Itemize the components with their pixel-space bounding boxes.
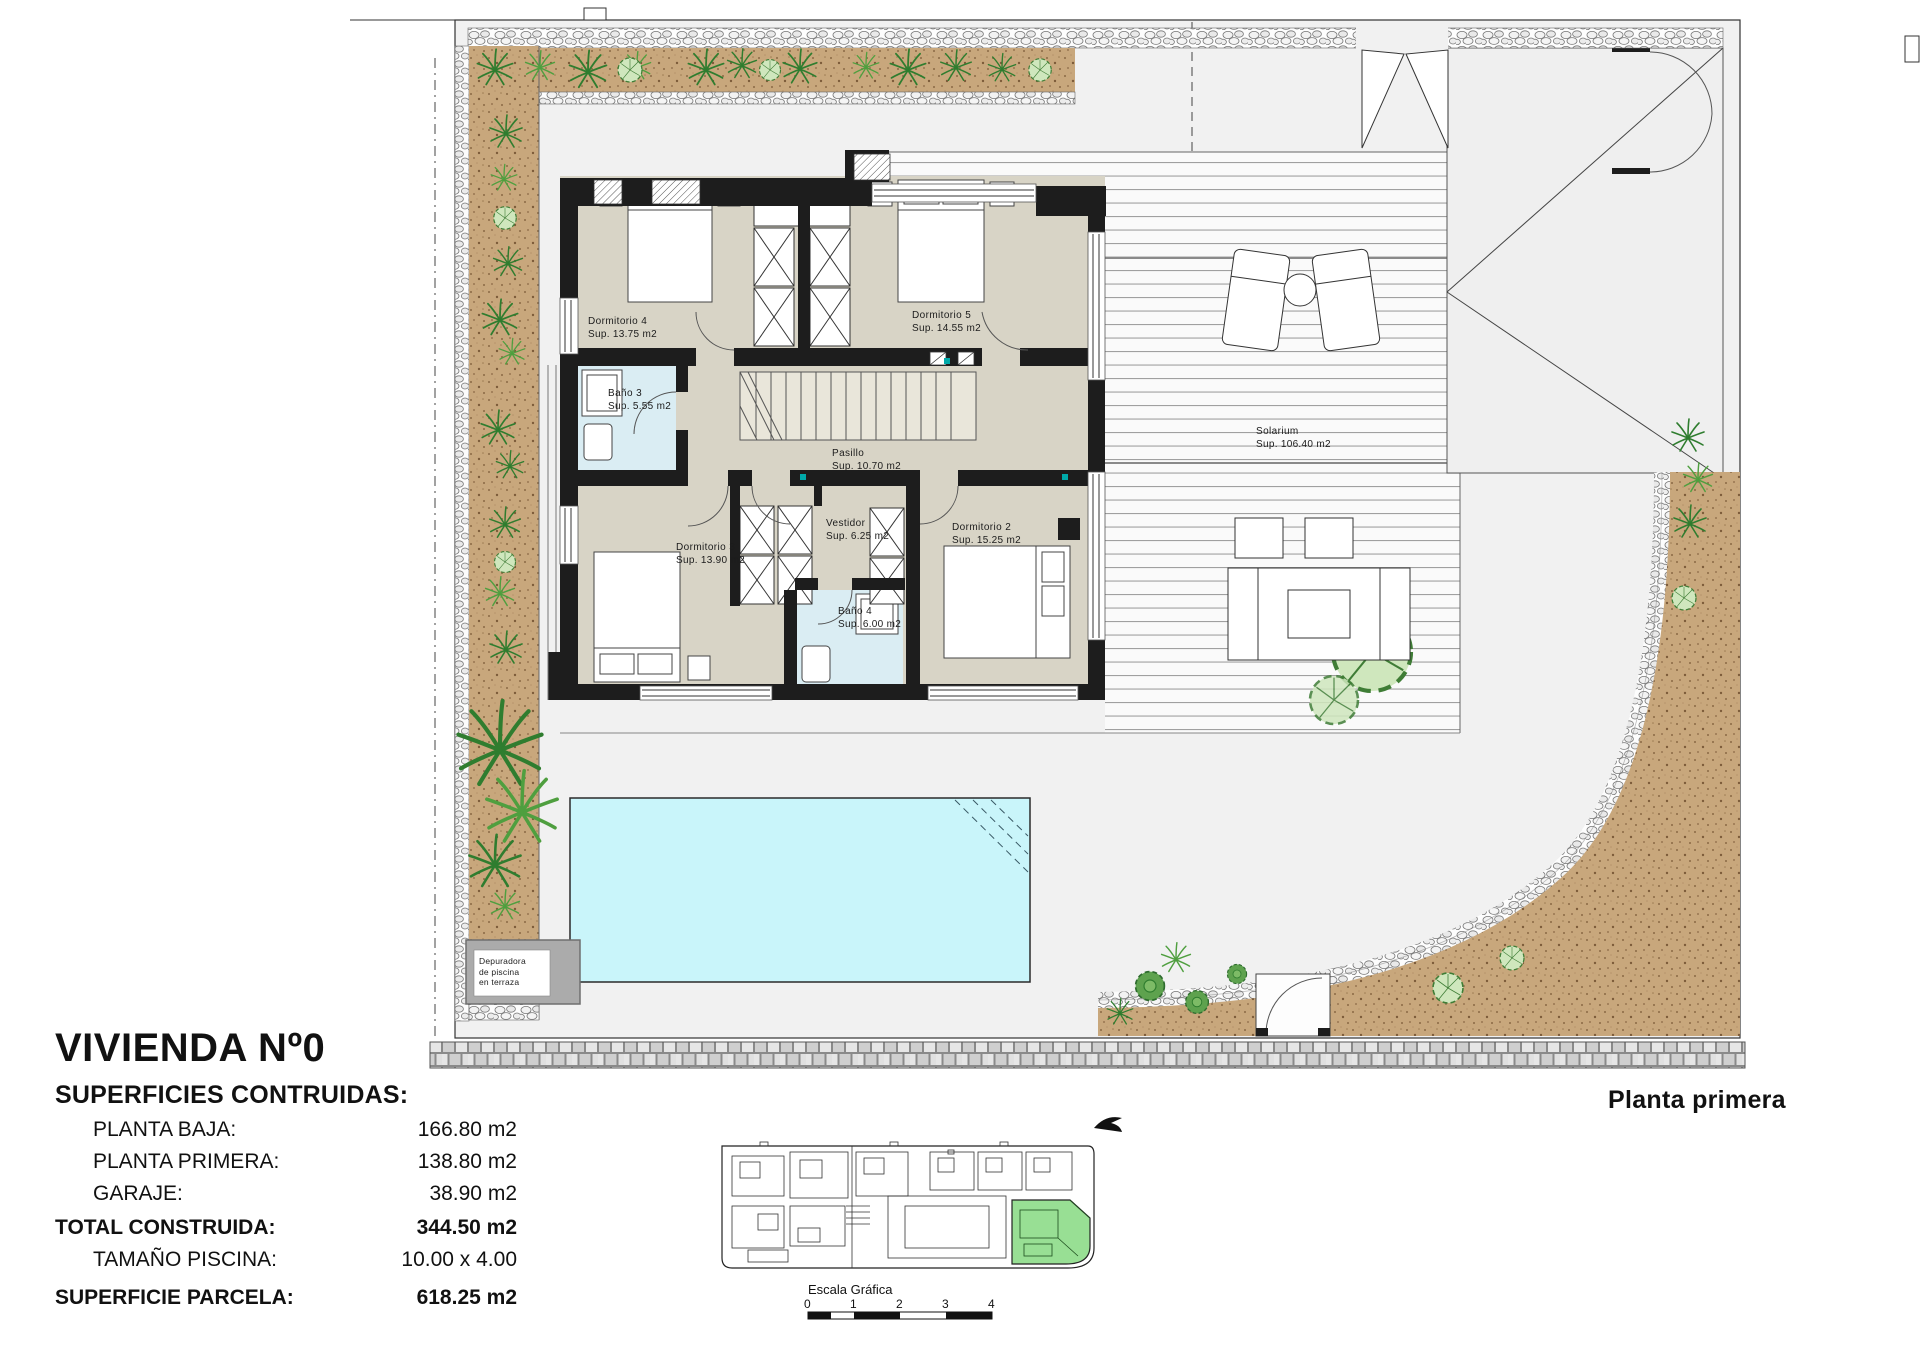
deck-table — [1305, 518, 1353, 558]
garage-roof — [1447, 46, 1723, 473]
room-label-dormitorio3: Dormitorio 3 Sup. 13.90 m2 — [676, 542, 745, 567]
house — [548, 150, 1106, 700]
row-total-construida: TOTAL CONSTRUIDA: 344.50 m2 — [55, 1216, 517, 1240]
scale-tick: 3 — [942, 1297, 949, 1311]
highlighted-unit — [1012, 1200, 1090, 1264]
floor-plan-sheet: Escala Gráfica 0 1 2 3 4 Dormitorio 4 Su… — [0, 0, 1920, 1357]
row-planta-primera: PLANTA PRIMERA: 138.80 m2 — [55, 1150, 517, 1174]
rear-gate — [1256, 974, 1330, 1036]
key-plan — [722, 1117, 1122, 1268]
room-label-pasillo: Pasillo Sup. 10.70 m2 — [832, 448, 901, 473]
row-superficie-parcela: SUPERFICIE PARCELA: 618.25 m2 — [55, 1286, 517, 1310]
bed-dorm2 — [944, 546, 1070, 658]
room-label-vestidor: Vestidor Sup. 6.25 m2 — [826, 518, 889, 543]
title-block: VIVIENDA Nº0 SUPERFICIES CONTRUIDAS: PLA… — [55, 1026, 517, 1310]
row-tamano-piscina: TAMAÑO PISCINA: 10.00 x 4.00 — [55, 1248, 517, 1272]
depuradora-note: Depuradora de piscina en terraza — [479, 956, 526, 988]
room-label-solarium: Solarium Sup. 106.40 m2 — [1256, 426, 1331, 451]
staircase — [740, 372, 976, 440]
room-label-dormitorio2: Dormitorio 2 Sup. 15.25 m2 — [952, 522, 1021, 547]
scale-tick: 4 — [988, 1297, 995, 1311]
sidewalk — [430, 1042, 1745, 1068]
room-label-bano4: Baño 4 Sup. 6.00 m2 — [838, 606, 901, 631]
row-planta-baja: PLANTA BAJA: 166.80 m2 — [55, 1118, 517, 1142]
sofa-set — [1228, 568, 1410, 660]
room-label-dormitorio4: Dormitorio 4 Sup. 13.75 m2 — [588, 316, 657, 341]
row-garaje: GARAJE: 38.90 m2 — [55, 1182, 517, 1206]
pool — [570, 798, 1030, 982]
surfaces-heading: SUPERFICIES CONTRUIDAS: — [55, 1081, 517, 1110]
room-label-bano3: Baño 3 Sup. 5.55 m2 — [608, 388, 671, 413]
scale-label: Escala Gráfica — [808, 1282, 893, 1297]
north-arrow-icon — [1094, 1117, 1122, 1132]
deck-table — [1235, 518, 1283, 558]
side-table — [1284, 274, 1316, 306]
scale-tick: 2 — [896, 1297, 903, 1311]
tree — [1310, 676, 1358, 724]
scale-tick: 1 — [850, 1297, 857, 1311]
scale-tick: 0 — [804, 1297, 811, 1311]
sheet-title: VIVIENDA Nº0 — [55, 1026, 517, 1071]
floor-name-label: Planta primera — [1608, 1086, 1786, 1115]
room-label-dormitorio5: Dormitorio 5 Sup. 14.55 m2 — [912, 310, 981, 335]
scale-bar: Escala Gráfica 0 1 2 3 4 — [804, 1282, 995, 1319]
